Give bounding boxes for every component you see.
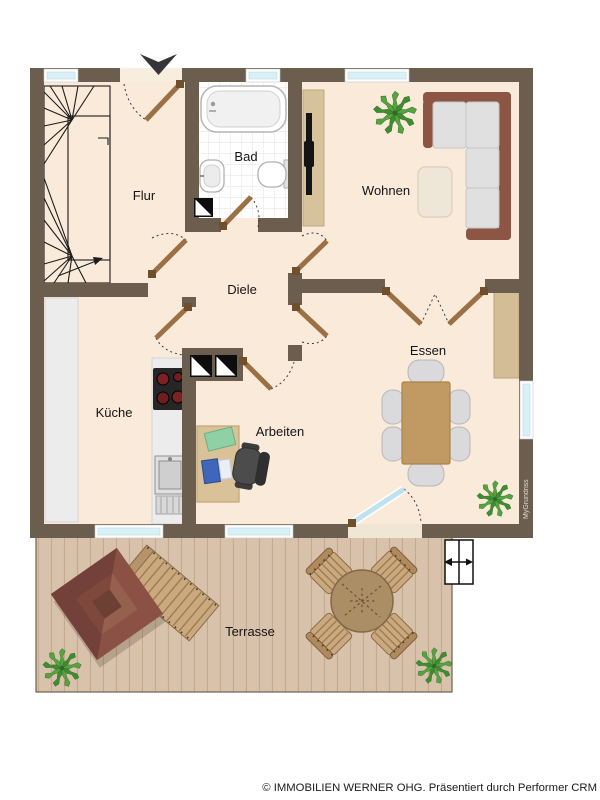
washbasin-icon	[200, 160, 224, 192]
dining-table-icon	[402, 382, 450, 464]
sideboard-icon	[494, 292, 519, 378]
terrace-table-icon	[331, 570, 393, 632]
shaft-icon	[194, 198, 213, 217]
room-label-terrasse: Terrasse	[225, 624, 275, 639]
window-icon	[246, 69, 280, 82]
exterior-steps-icon	[444, 540, 473, 584]
room-label-essen: Essen	[410, 343, 446, 358]
dining-chair-icon	[408, 360, 444, 384]
coffee-table-icon	[418, 167, 452, 217]
window-icon	[44, 69, 78, 82]
room-label-kueche: Küche	[96, 405, 133, 420]
room-label-diele: Diele	[227, 282, 257, 297]
shaft-icon	[215, 355, 237, 377]
footer-copyright: © IMMOBILIEN WERNER OHG. Präsentiert dur…	[262, 782, 597, 794]
room-label-bad: Bad	[234, 149, 257, 164]
dining-chair-icon	[448, 427, 470, 461]
shaft-icon	[190, 355, 212, 377]
floorplan-page: MyGrundriss Flur Bad Wohnen Diele Küche …	[0, 0, 600, 800]
terrace-area	[36, 531, 473, 692]
tv-sideboard-icon	[303, 90, 324, 226]
dining-chair-icon	[448, 390, 470, 424]
window-icon	[345, 69, 409, 82]
room-label-arbeiten: Arbeiten	[256, 424, 304, 439]
entrance-opening	[120, 68, 182, 82]
stove-icon	[153, 368, 187, 410]
dining-chair-icon	[382, 427, 404, 461]
room-label-wohnen: Wohnen	[362, 183, 410, 198]
floor-plan-canvas: MyGrundriss Flur Bad Wohnen Diele Küche …	[0, 0, 600, 800]
window-icon	[520, 381, 533, 439]
bathtub-icon	[201, 86, 286, 132]
window-icon	[225, 525, 293, 538]
kitchen-sink-icon	[155, 456, 185, 514]
kitchen-counter-icon	[45, 298, 78, 522]
dining-chair-icon	[382, 390, 404, 424]
watermark: MyGrundriss	[523, 479, 530, 519]
window-icon	[95, 525, 163, 538]
room-label-flur: Flur	[133, 188, 156, 203]
toilet-icon	[258, 160, 289, 188]
dining-chair-icon	[408, 462, 444, 486]
